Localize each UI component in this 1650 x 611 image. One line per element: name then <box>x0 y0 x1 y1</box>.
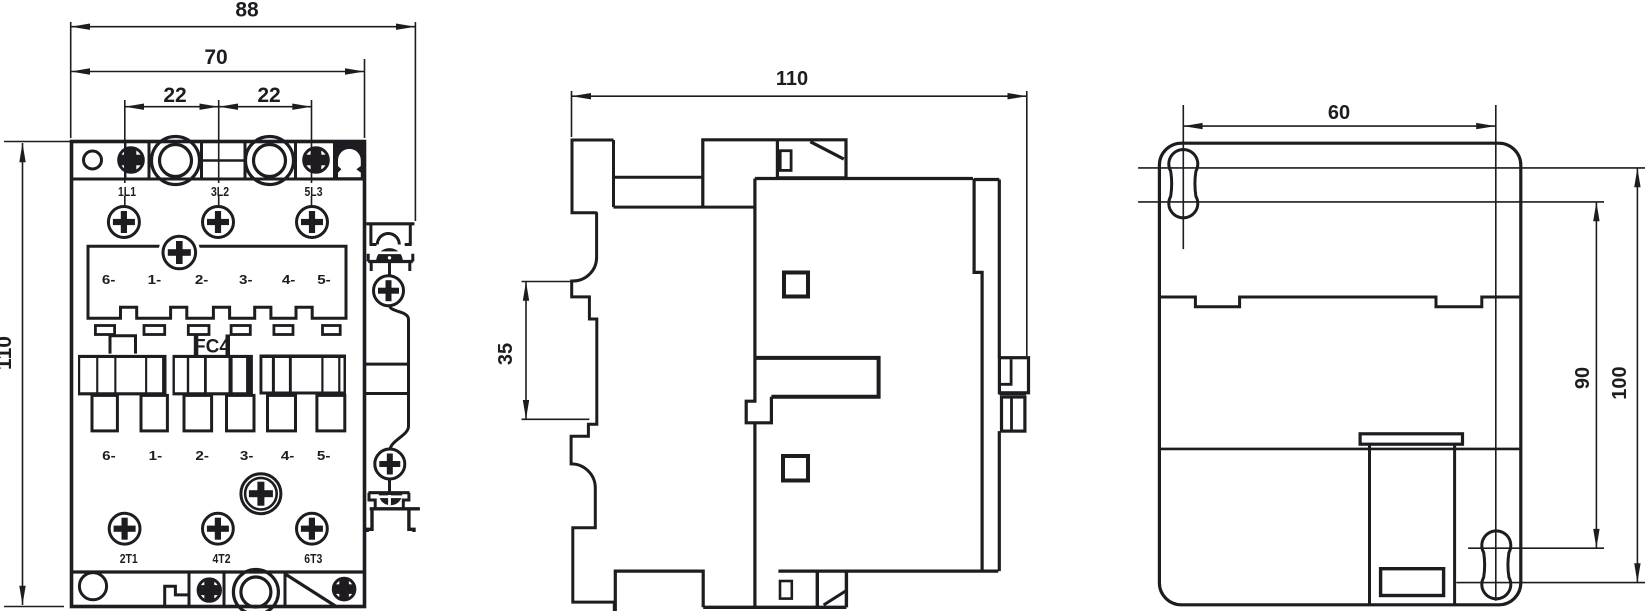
svg-text:60: 60 <box>1328 102 1350 124</box>
svg-text:22: 22 <box>163 84 186 107</box>
svg-text:110: 110 <box>776 68 808 90</box>
svg-text:4-: 4- <box>281 449 295 463</box>
svg-text:2T1: 2T1 <box>120 551 138 566</box>
svg-text:6T3: 6T3 <box>304 551 322 566</box>
svg-text:6-: 6- <box>102 273 116 287</box>
svg-text:3-: 3- <box>239 273 253 287</box>
svg-text:1-: 1- <box>148 273 162 287</box>
svg-text:1-: 1- <box>149 449 163 463</box>
svg-text:70: 70 <box>204 46 227 69</box>
svg-text:2-: 2- <box>195 273 209 287</box>
svg-text:2-: 2- <box>195 449 209 463</box>
svg-text:3-: 3- <box>240 449 254 463</box>
svg-text:FC4: FC4 <box>194 337 230 358</box>
svg-text:4T2: 4T2 <box>213 551 231 566</box>
svg-text:5-: 5- <box>317 273 331 287</box>
svg-text:1L1: 1L1 <box>118 184 136 199</box>
svg-text:88: 88 <box>235 0 259 22</box>
svg-text:90: 90 <box>1572 367 1594 389</box>
svg-text:100: 100 <box>1609 366 1631 399</box>
svg-text:5L3: 5L3 <box>305 184 323 199</box>
svg-text:35: 35 <box>495 343 517 365</box>
svg-text:4-: 4- <box>282 273 296 287</box>
svg-text:5-: 5- <box>317 449 331 463</box>
svg-text:6-: 6- <box>102 449 116 463</box>
svg-text:3L2: 3L2 <box>211 184 229 199</box>
svg-text:110: 110 <box>0 336 16 370</box>
svg-text:22: 22 <box>257 84 280 107</box>
